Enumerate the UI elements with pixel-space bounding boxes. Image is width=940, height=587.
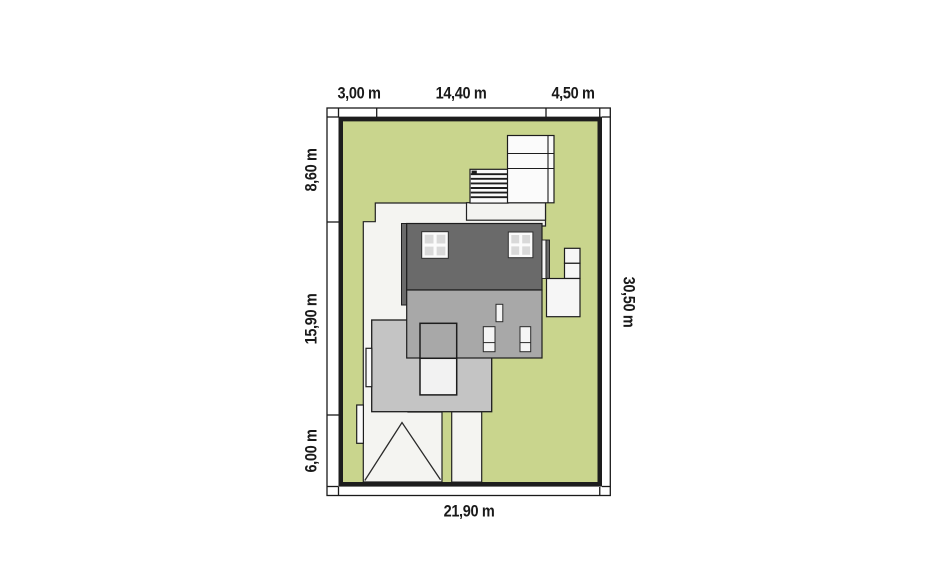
site-plan: 3,00 m 14,40 m 4,50 m 8,60 m 15,90 m 6,0… (0, 0, 940, 587)
skylight-upper-right (508, 232, 533, 258)
exterior-stairs (470, 169, 508, 203)
garden-path (452, 412, 482, 482)
skylight-upper-left (422, 232, 449, 259)
dim-label-left-2: 15,90 m (303, 293, 322, 344)
side-wall-strip (546, 240, 550, 279)
dim-label-bottom: 21,90 m (444, 503, 495, 522)
balcony-structure (508, 136, 555, 203)
dim-label-top-1: 3,00 m (337, 85, 380, 104)
dim-label-left-3: 6,00 m (303, 429, 322, 472)
dim-label-right: 30,50 m (619, 277, 638, 328)
roof-edge-strip (402, 224, 407, 306)
side-landing (542, 240, 546, 279)
side-door (366, 348, 372, 386)
entrance-porch (467, 203, 546, 221)
roof-dormer (420, 323, 457, 358)
dim-label-top-3: 4,50 m (551, 85, 594, 104)
side-gate (357, 405, 364, 443)
rooflight-square (420, 358, 457, 395)
dim-label-top-2: 14,40 m (436, 85, 487, 104)
dim-label-left-1: 8,60 m (303, 148, 322, 191)
